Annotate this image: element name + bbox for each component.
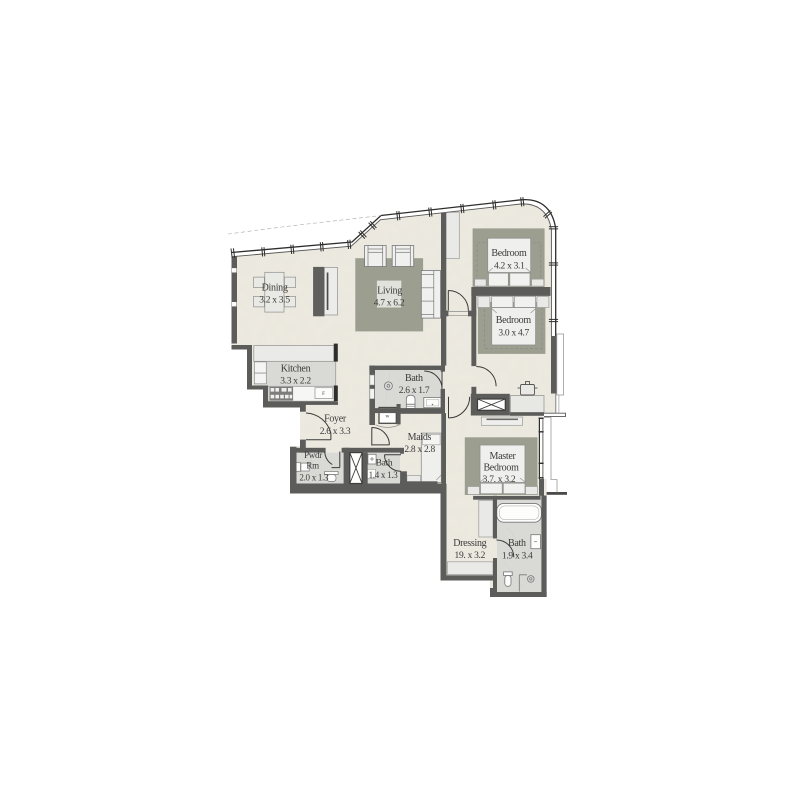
- svg-text:Dressing: Dressing: [453, 538, 486, 549]
- svg-text:4.2 x 3.1: 4.2 x 3.1: [494, 261, 525, 271]
- svg-text:Bath: Bath: [376, 459, 393, 469]
- svg-text:Bedroom: Bedroom: [496, 315, 532, 326]
- svg-text:Master: Master: [490, 451, 517, 462]
- svg-text:Bath: Bath: [508, 538, 526, 549]
- svg-text:Rm: Rm: [306, 461, 319, 471]
- svg-text:Living: Living: [377, 286, 402, 297]
- svg-text:2.6 x 3.3: 2.6 x 3.3: [320, 427, 351, 437]
- svg-text:Bath: Bath: [405, 373, 423, 384]
- svg-text:2.8 x 2.8: 2.8 x 2.8: [404, 445, 435, 455]
- svg-text:1.4 x 1.3: 1.4 x 1.3: [369, 470, 399, 480]
- svg-text:Kitchen: Kitchen: [281, 364, 311, 375]
- svg-text:2.6 x 1.7: 2.6 x 1.7: [399, 386, 430, 396]
- svg-text:1.9 x 3.4: 1.9 x 3.4: [502, 551, 533, 561]
- svg-text:Bedroom: Bedroom: [483, 463, 519, 474]
- svg-text:2.0 x 1.3: 2.0 x 1.3: [299, 473, 329, 483]
- svg-text:3.7. x 3.2: 3.7. x 3.2: [483, 475, 516, 485]
- svg-text:19. x 3.2: 19. x 3.2: [455, 551, 486, 561]
- svg-text:F: F: [322, 392, 325, 397]
- svg-text:Pwdr: Pwdr: [304, 450, 322, 460]
- svg-text:3.2 x 3.5: 3.2 x 3.5: [259, 296, 290, 306]
- svg-text:w: w: [386, 414, 390, 420]
- svg-text:Maids: Maids: [408, 432, 432, 443]
- svg-text:3.0 x 4.7: 3.0 x 4.7: [498, 329, 529, 339]
- svg-text:Bedroom: Bedroom: [491, 248, 527, 259]
- svg-text:Dining: Dining: [262, 283, 288, 294]
- svg-text:Foyer: Foyer: [324, 414, 347, 425]
- svg-text:3.3 x 2.2: 3.3 x 2.2: [280, 377, 311, 387]
- svg-text:4.7 x 6.2: 4.7 x 6.2: [374, 299, 405, 309]
